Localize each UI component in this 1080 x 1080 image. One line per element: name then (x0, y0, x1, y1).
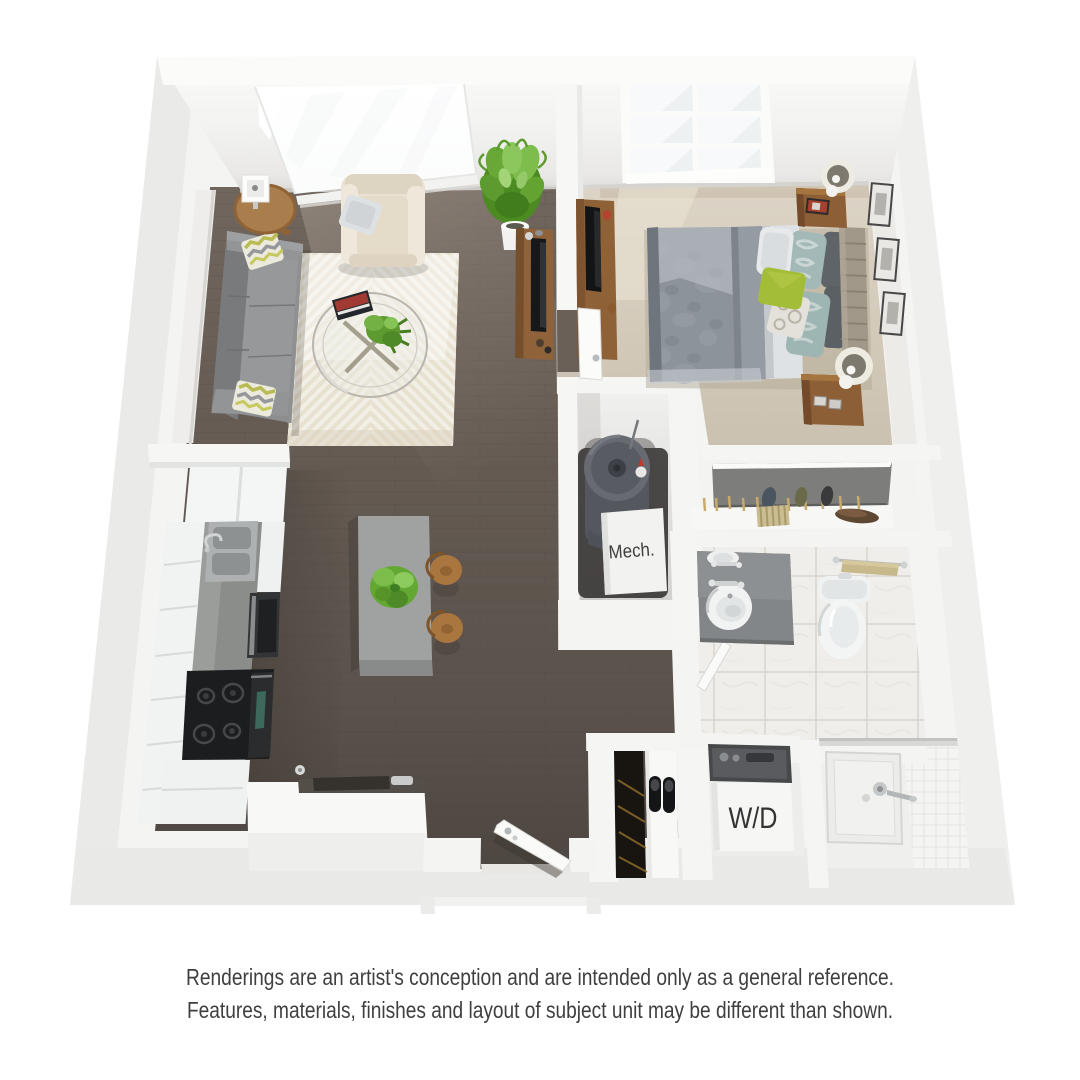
svg-text:W/D: W/D (729, 802, 778, 835)
svg-text:Renderings are an artist's con: Renderings are an artist's conception an… (186, 964, 894, 990)
svg-text:Mech.: Mech. (608, 539, 655, 563)
svg-text:Features, materials, finishes: Features, materials, finishes and layout… (187, 997, 893, 1023)
